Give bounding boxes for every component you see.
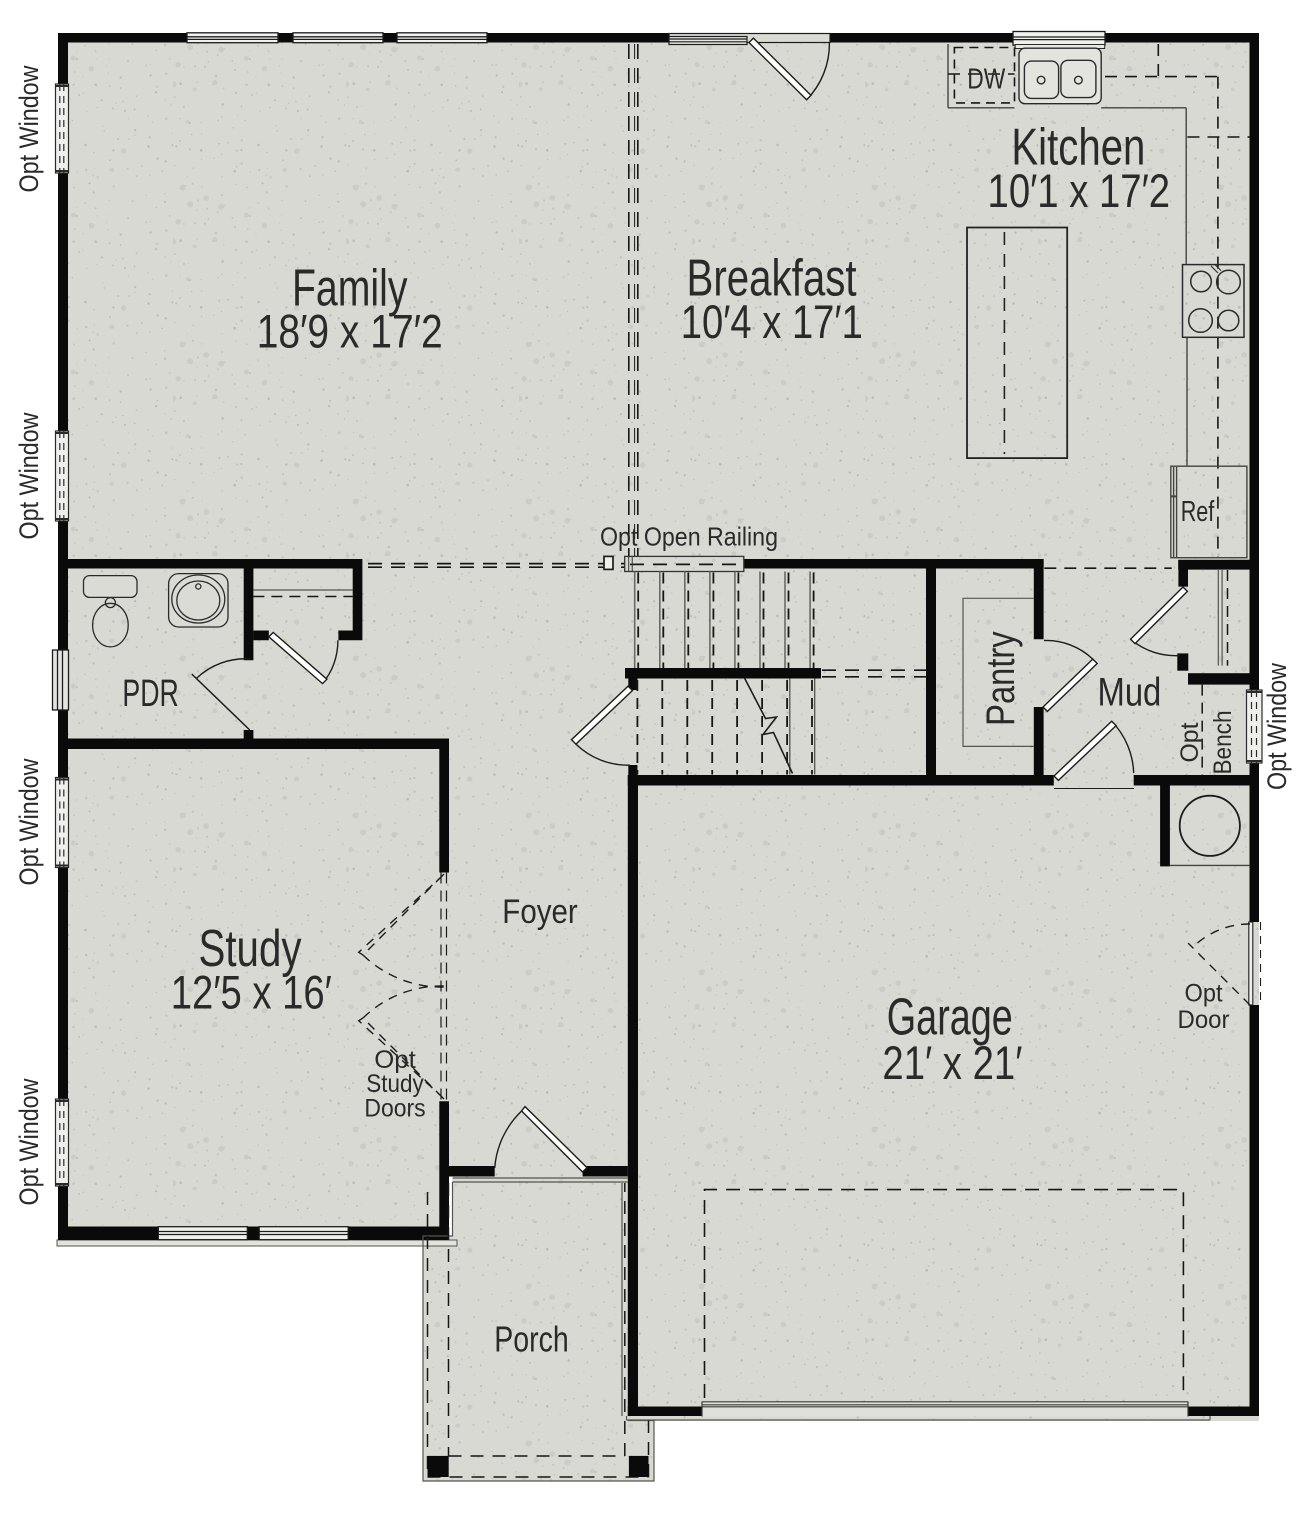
svg-text:Porch: Porch <box>494 1319 569 1360</box>
svg-text:Foyer: Foyer <box>502 893 577 931</box>
svg-text:DW: DW <box>967 64 1005 96</box>
svg-text:Opt Window: Opt Window <box>14 1078 44 1205</box>
svg-text:Opt Window: Opt Window <box>14 65 44 192</box>
svg-text:Opt Window: Opt Window <box>1262 663 1292 790</box>
svg-text:Door: Door <box>1178 1006 1230 1034</box>
svg-text:Opt Window: Opt Window <box>14 758 44 885</box>
svg-text:Opt: Opt <box>1185 980 1223 1008</box>
svg-text:Doors: Doors <box>364 1095 425 1123</box>
svg-text:18′9 x 17′2: 18′9 x 17′2 <box>257 305 443 358</box>
svg-text:Pantry: Pantry <box>979 631 1023 726</box>
svg-text:Ref: Ref <box>1181 496 1215 528</box>
svg-text:12′5 x 16′: 12′5 x 16′ <box>171 966 332 1019</box>
svg-text:21′ x 21′: 21′ x 21′ <box>882 1036 1022 1089</box>
svg-text:Opt Open Railing: Opt Open Railing <box>600 522 778 552</box>
svg-text:Mud: Mud <box>1098 671 1162 715</box>
svg-text:Opt: Opt <box>1176 722 1204 762</box>
svg-text:10′1 x 17′2: 10′1 x 17′2 <box>988 164 1171 217</box>
svg-text:Bench: Bench <box>1209 711 1237 775</box>
svg-text:10′4 x 17′1: 10′4 x 17′1 <box>681 295 863 348</box>
svg-text:Opt Window: Opt Window <box>14 412 44 539</box>
svg-text:PDR: PDR <box>122 673 178 715</box>
